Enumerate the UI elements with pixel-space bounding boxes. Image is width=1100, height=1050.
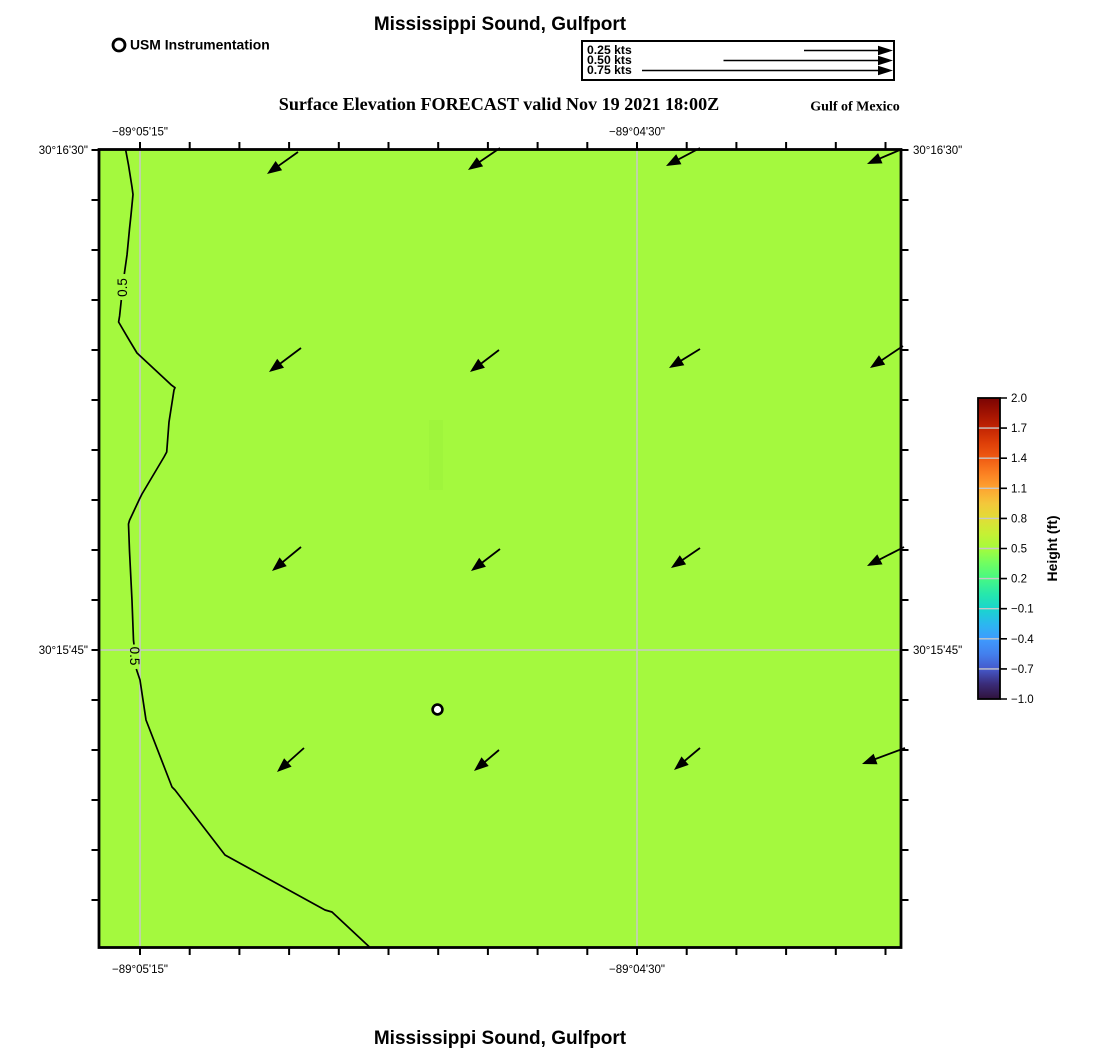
svg-text:−89°04'30": −89°04'30" (609, 964, 665, 976)
svg-text:0.8: 0.8 (1011, 513, 1027, 525)
svg-text:Gulf of Mexico: Gulf of Mexico (810, 100, 899, 115)
svg-text:0.2: 0.2 (1011, 574, 1027, 586)
svg-text:30°16'30": 30°16'30" (913, 145, 962, 157)
svg-text:30°15'45": 30°15'45" (39, 645, 88, 657)
svg-text:−89°04'30": −89°04'30" (609, 127, 665, 139)
svg-text:−89°05'15": −89°05'15" (112, 127, 168, 139)
svg-text:1.7: 1.7 (1011, 423, 1027, 435)
svg-text:30°15'45": 30°15'45" (913, 645, 962, 657)
svg-text:30°16'30": 30°16'30" (39, 145, 88, 157)
svg-text:−0.7: −0.7 (1011, 664, 1034, 676)
svg-text:−0.1: −0.1 (1011, 604, 1034, 616)
svg-text:1.1: 1.1 (1011, 483, 1027, 495)
svg-text:Surface Elevation FORECAST val: Surface Elevation FORECAST valid Nov 19 … (279, 94, 719, 114)
svg-text:−1.0: −1.0 (1011, 694, 1034, 706)
svg-text:−0.4: −0.4 (1011, 634, 1034, 646)
svg-text:0.5: 0.5 (127, 647, 142, 666)
svg-text:USM Instrumentation: USM Instrumentation (130, 37, 270, 53)
svg-text:Mississippi Sound, Gulfport: Mississippi Sound, Gulfport (374, 14, 627, 35)
svg-text:−89°05'15": −89°05'15" (112, 964, 168, 976)
svg-text:1.4: 1.4 (1011, 453, 1028, 465)
svg-text:0.75 kts: 0.75 kts (587, 63, 632, 77)
svg-text:2.0: 2.0 (1011, 393, 1027, 405)
svg-text:Height (ft): Height (ft) (1044, 515, 1060, 581)
svg-text:Mississippi Sound, Gulfport: Mississippi Sound, Gulfport (374, 1028, 627, 1049)
svg-text:0.5: 0.5 (115, 278, 130, 297)
svg-text:0.5: 0.5 (1011, 544, 1027, 556)
